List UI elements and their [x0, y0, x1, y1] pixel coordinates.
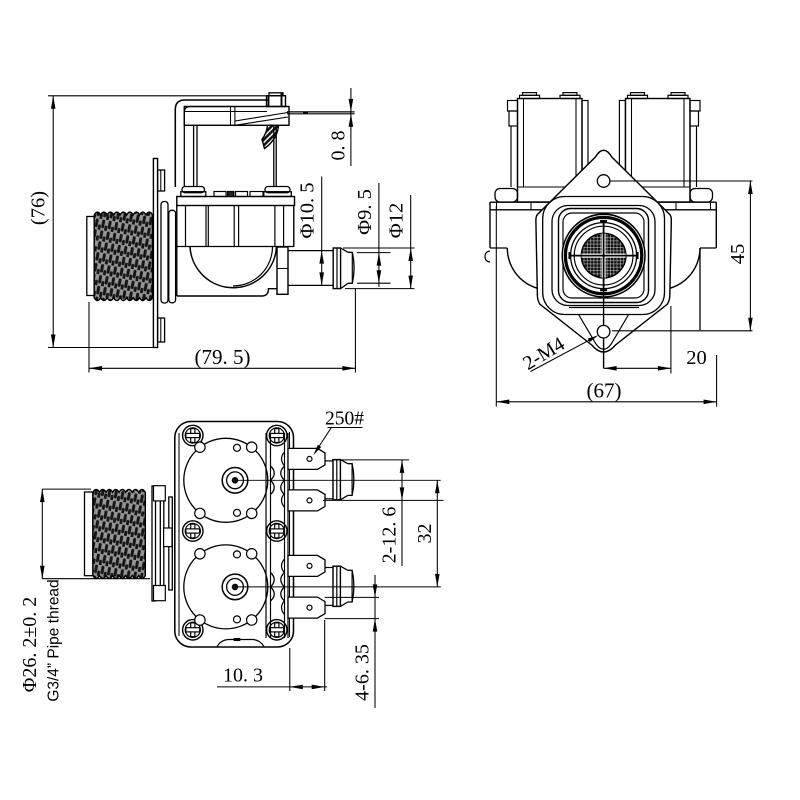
svg-text:(67): (67): [587, 379, 622, 403]
svg-text:10. 3: 10. 3: [223, 665, 263, 687]
svg-text:250#: 250#: [325, 409, 364, 430]
svg-text:32: 32: [414, 524, 436, 544]
svg-text:2-12. 6: 2-12. 6: [379, 507, 401, 564]
svg-text:20: 20: [686, 347, 707, 369]
svg-text:(79. 5): (79. 5): [195, 345, 251, 369]
svg-text:45: 45: [727, 244, 749, 265]
svg-text:(76): (76): [28, 191, 50, 225]
svg-text:0. 8: 0. 8: [328, 131, 350, 161]
svg-text:G3/4” Pipe thread: G3/4” Pipe thread: [46, 579, 63, 701]
svg-text:Φ12: Φ12: [386, 203, 408, 239]
svg-text:Φ9. 5: Φ9. 5: [354, 189, 376, 235]
svg-text:Φ26. 2±0. 2: Φ26. 2±0. 2: [19, 597, 41, 693]
svg-text:4-6. 35: 4-6. 35: [352, 644, 374, 701]
svg-text:Φ10. 5: Φ10. 5: [297, 183, 319, 239]
